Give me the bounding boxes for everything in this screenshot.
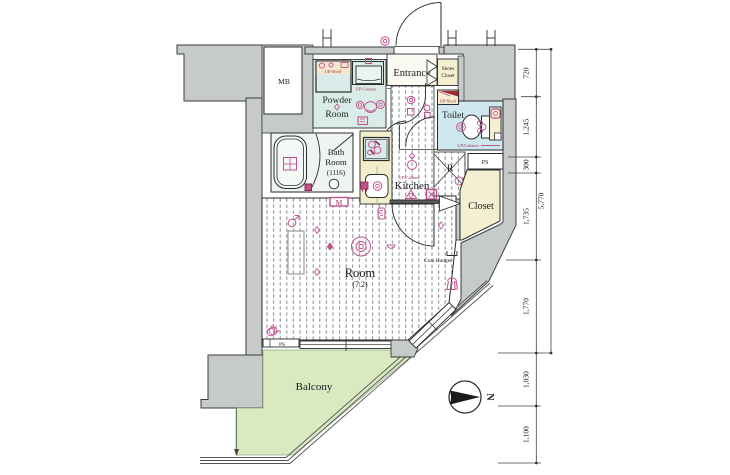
- svg-text:Room: Room: [325, 157, 347, 167]
- svg-text:5,770: 5,770: [537, 192, 546, 209]
- svg-text:Room: Room: [345, 266, 376, 280]
- svg-text:1,245: 1,245: [522, 118, 531, 135]
- svg-text:UP/Cabinet: UP/Cabinet: [457, 143, 479, 148]
- svg-text:Toilet: Toilet: [442, 111, 464, 121]
- svg-text:Entrance: Entrance: [393, 68, 431, 79]
- svg-text:Closet: Closet: [468, 201, 494, 212]
- svg-text:Room: Room: [325, 110, 349, 120]
- svg-text:M: M: [336, 198, 343, 207]
- svg-text:R: R: [447, 164, 454, 174]
- svg-text:(7.2): (7.2): [352, 280, 368, 289]
- svg-text:1,735: 1,735: [522, 208, 531, 225]
- svg-text:MB: MB: [278, 77, 290, 86]
- svg-text:720: 720: [522, 67, 531, 79]
- svg-text:1,770: 1,770: [522, 298, 531, 315]
- svg-text:1,030: 1,030: [522, 371, 531, 388]
- svg-text:N: N: [484, 393, 495, 401]
- svg-text:Kitchen: Kitchen: [395, 180, 430, 192]
- svg-text:(1116): (1116): [327, 169, 346, 177]
- svg-text:UP/Shelf: UP/Shelf: [325, 69, 342, 74]
- svg-text:1,100: 1,100: [522, 426, 531, 443]
- svg-text:300: 300: [522, 159, 531, 171]
- svg-text:PS: PS: [279, 342, 285, 348]
- svg-text:Coat Hanger: Coat Hanger: [424, 258, 452, 264]
- svg-text:PS: PS: [482, 160, 489, 166]
- svg-text:Balcony: Balcony: [296, 381, 333, 393]
- svg-text:UP/Cabinet: UP/Cabinet: [356, 87, 377, 92]
- svg-text:Closet: Closet: [441, 73, 455, 79]
- svg-text:Shoes: Shoes: [442, 66, 454, 72]
- svg-text:UP/Shelf: UP/Shelf: [440, 99, 457, 104]
